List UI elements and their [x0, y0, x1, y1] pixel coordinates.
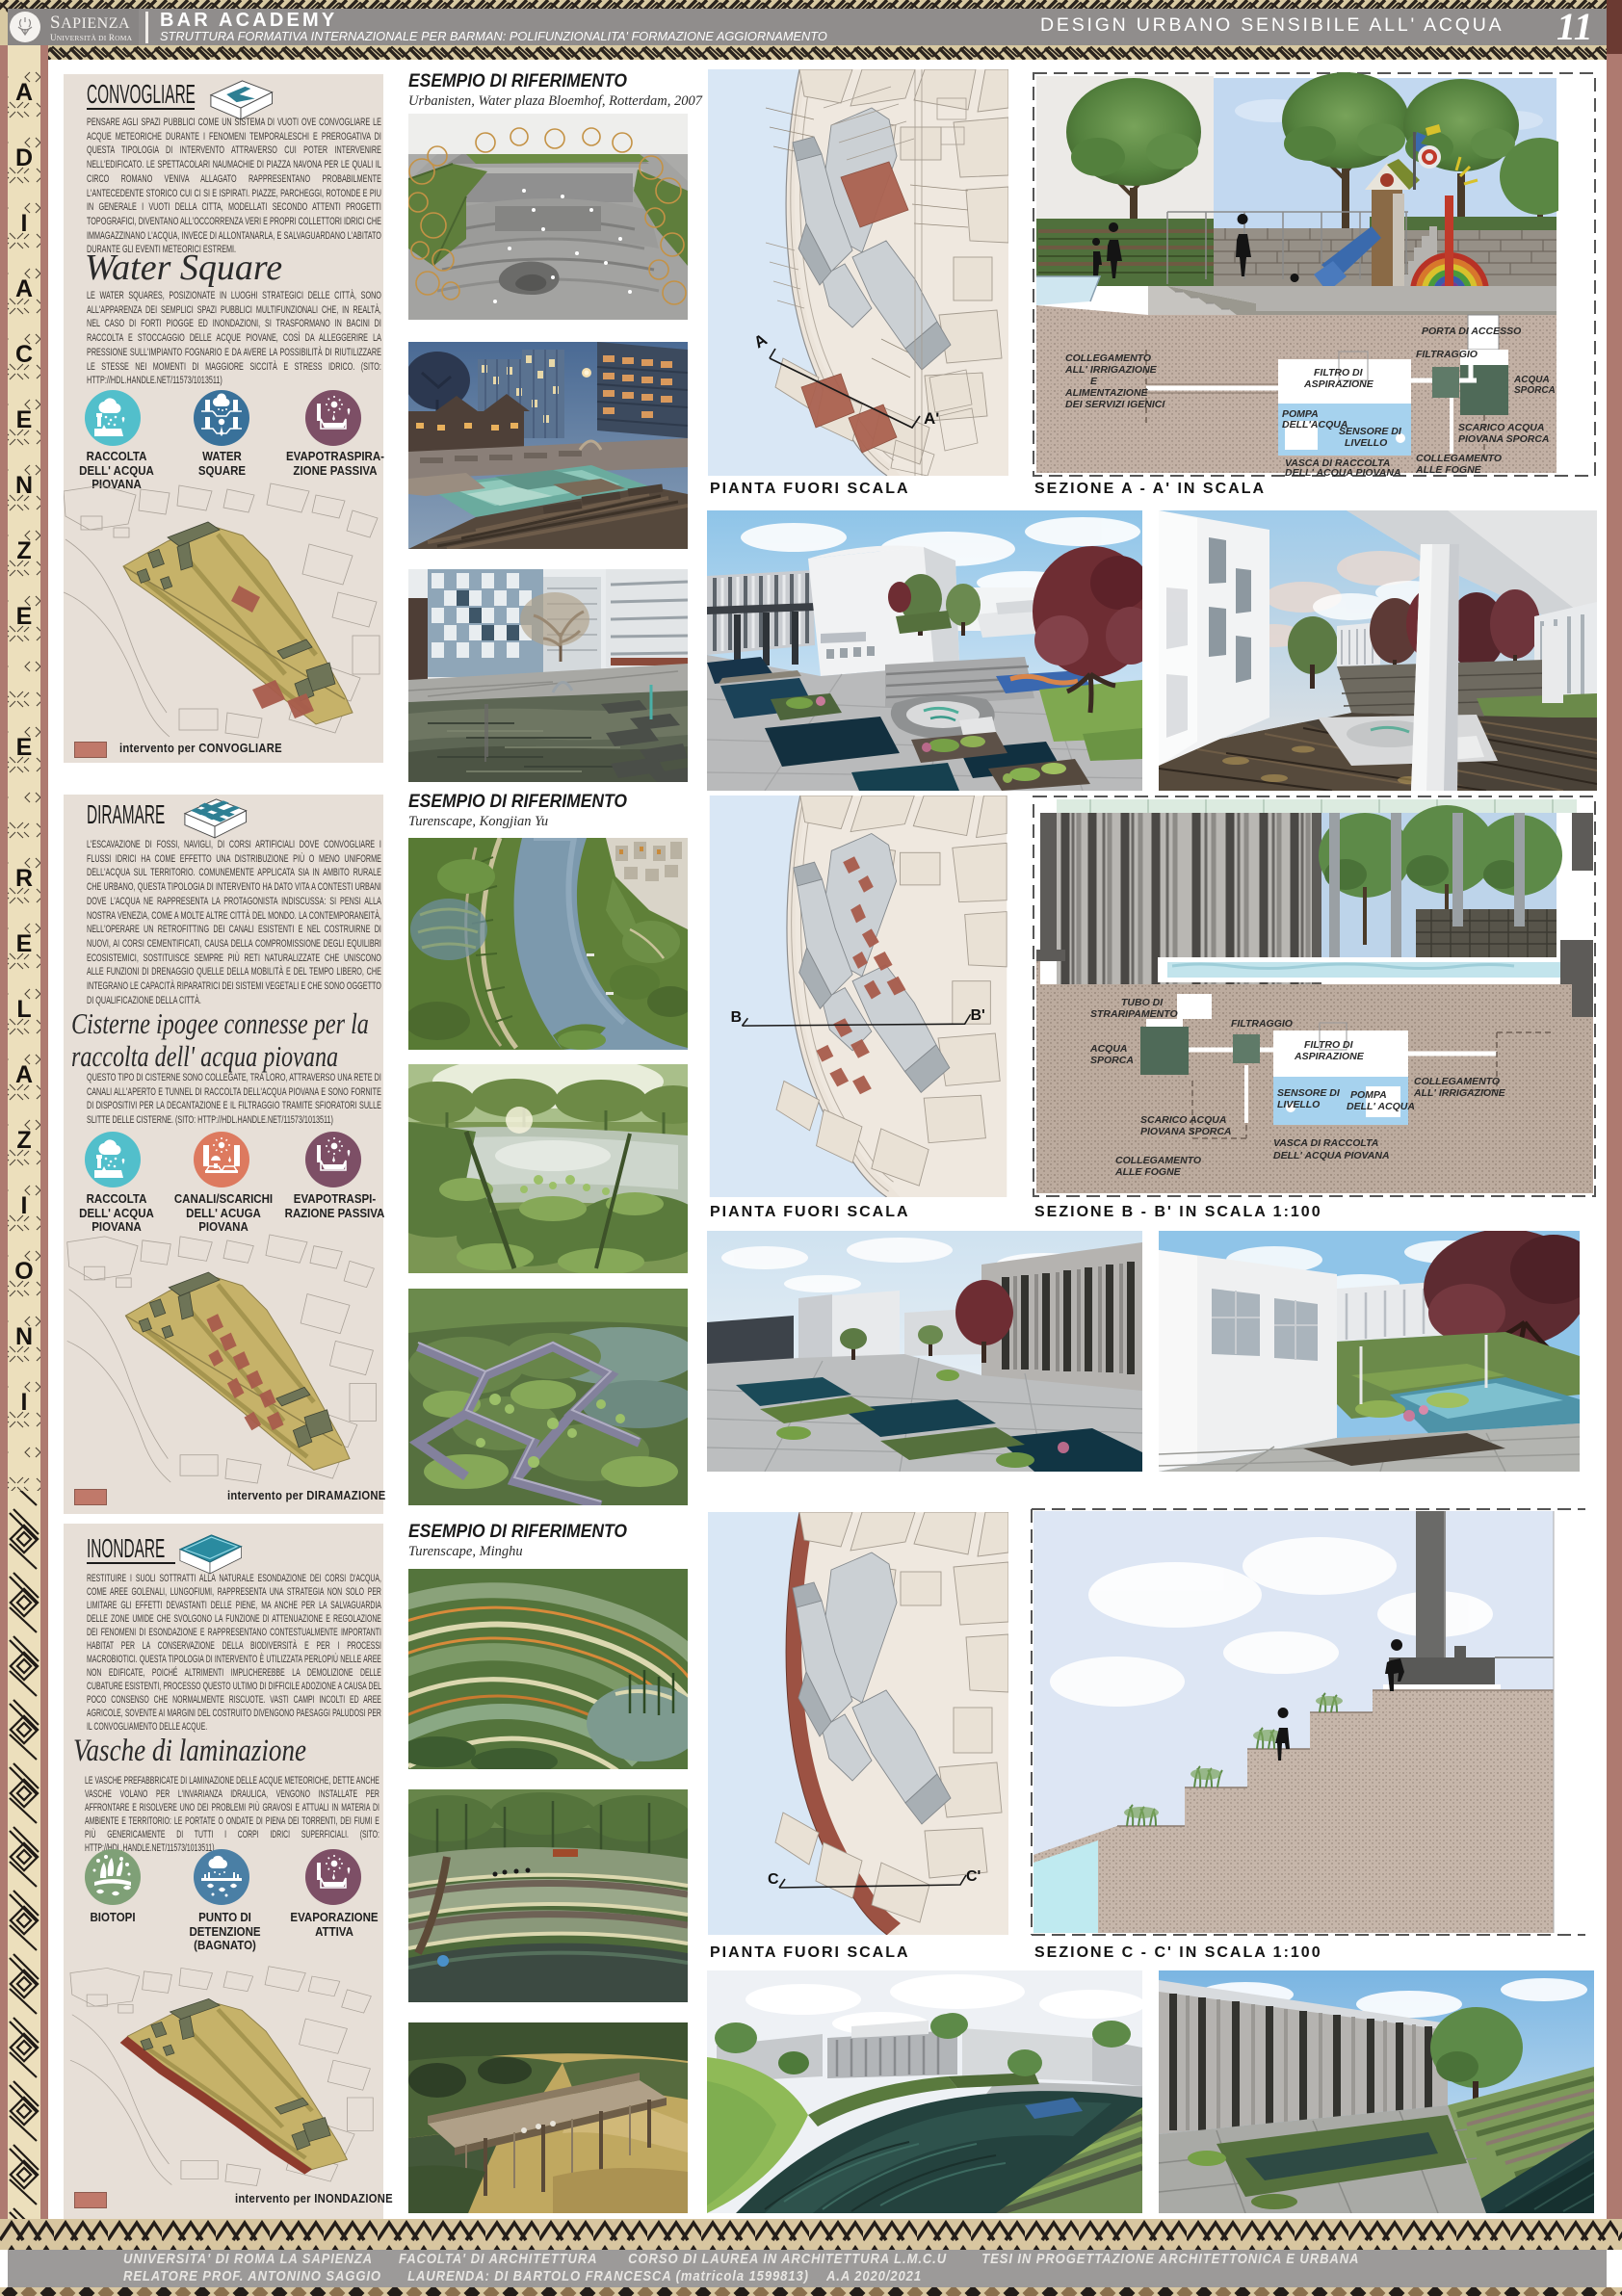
svg-text:DELL' ACQUA: DELL' ACQUA — [1347, 1101, 1415, 1112]
svg-text:COLLEGAMENTO: COLLEGAMENTO — [1416, 453, 1502, 464]
svg-text:A': A' — [924, 409, 939, 428]
svg-text:ASPIRAZIONE: ASPIRAZIONE — [1294, 1051, 1365, 1062]
svg-text:TUBO DI: TUBO DI — [1121, 997, 1164, 1008]
svg-text:B: B — [731, 1009, 742, 1026]
svg-text:SPORCA: SPORCA — [1514, 385, 1556, 396]
svg-text:LIVELLO: LIVELLO — [1277, 1099, 1320, 1110]
svg-text:POMPA: POMPA — [1350, 1089, 1387, 1101]
svg-text:STRARIPAMENTO: STRARIPAMENTO — [1090, 1008, 1178, 1020]
svg-text:SCARICO ACQUA: SCARICO ACQUA — [1458, 422, 1544, 433]
svg-text:DELL' ACQUA PIOVANA: DELL' ACQUA PIOVANA — [1285, 467, 1401, 477]
svg-text:FILTRAGGIO: FILTRAGGIO — [1416, 349, 1478, 360]
svg-text:SPORCA: SPORCA — [1090, 1055, 1134, 1066]
svg-text:VASCA DI RACCOLTA: VASCA DI RACCOLTA — [1273, 1137, 1378, 1149]
svg-text:DELL' ACQUA PIOVANA: DELL' ACQUA PIOVANA — [1273, 1150, 1390, 1161]
svg-text:SCARICO ACQUA: SCARICO ACQUA — [1140, 1114, 1226, 1126]
svg-text:SENSORE DI: SENSORE DI — [1339, 426, 1402, 437]
svg-text:DEI SERVIZI IGENICI: DEI SERVIZI IGENICI — [1065, 399, 1165, 410]
svg-text:PIOVANA SPORCA: PIOVANA SPORCA — [1140, 1126, 1232, 1137]
svg-text:COLLEGAMENTO: COLLEGAMENTO — [1065, 352, 1151, 364]
svg-text:LIVELLO: LIVELLO — [1345, 437, 1387, 449]
svg-text:ALLE FOGNE: ALLE FOGNE — [1114, 1166, 1182, 1178]
svg-text:B': B' — [971, 1007, 985, 1024]
svg-text:COLLEGAMENTO: COLLEGAMENTO — [1414, 1076, 1500, 1087]
svg-text:C: C — [768, 1871, 779, 1888]
svg-text:PIOVANA SPORCA: PIOVANA SPORCA — [1458, 433, 1550, 445]
svg-text:ACQUA: ACQUA — [1513, 375, 1550, 385]
svg-text:ALL' IRRIGAZIONE: ALL' IRRIGAZIONE — [1064, 364, 1158, 376]
svg-text:ALLE FOGNE: ALLE FOGNE — [1415, 464, 1482, 476]
svg-text:COLLEGAMENTO: COLLEGAMENTO — [1115, 1155, 1201, 1166]
svg-text:E: E — [1090, 376, 1098, 387]
svg-text:ACQUA: ACQUA — [1089, 1043, 1128, 1055]
svg-text:ALL' IRRIGAZIONE: ALL' IRRIGAZIONE — [1413, 1087, 1506, 1099]
svg-text:FILTRO DI: FILTRO DI — [1304, 1039, 1354, 1051]
svg-text:ASPIRAZIONE: ASPIRAZIONE — [1303, 378, 1374, 390]
svg-text:FILTRAGGIO: FILTRAGGIO — [1231, 1018, 1293, 1030]
svg-text:SENSORE DI: SENSORE DI — [1277, 1087, 1341, 1099]
svg-text:C': C' — [966, 1868, 981, 1885]
svg-text:FILTRO DI: FILTRO DI — [1314, 367, 1364, 378]
svg-text:PORTA DI ACCESSO: PORTA DI ACCESSO — [1422, 326, 1521, 337]
svg-text:ALIMENTAZIONE: ALIMENTAZIONE — [1064, 387, 1149, 399]
